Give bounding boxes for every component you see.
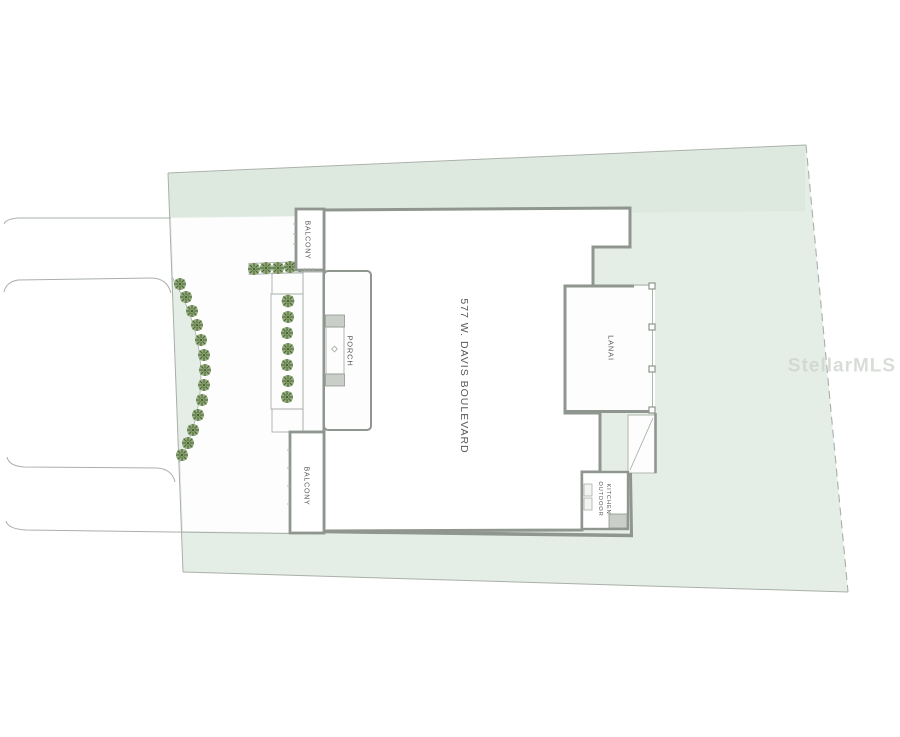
east-lower-wall — [631, 473, 632, 534]
curb-line-north — [4, 218, 171, 224]
label-lanai: LANAI — [607, 335, 616, 361]
site-plan-page: BALCONY BALCONY PORCH 577 W. DAVIS BOULE… — [0, 0, 900, 737]
label-porch: PORCH — [346, 335, 355, 366]
label-address: 577 W. DAVIS BOULEVARD — [458, 298, 470, 453]
kitchen-fixture-1 — [584, 484, 592, 496]
curb-line-lower-apron — [7, 457, 175, 482]
watermark-text: StellarMLS — [788, 356, 896, 377]
label-outdoor-kitchen-line2: KITCHEN — [605, 483, 611, 514]
label-outdoor-kitchen-line1: OUTDOOR — [597, 481, 603, 516]
site-plan-svg: BALCONY BALCONY PORCH 577 W. DAVIS BOULE… — [0, 0, 900, 737]
kitchen-island — [609, 514, 627, 528]
curb-line-upper-apron — [4, 278, 171, 293]
label-balcony-lower: BALCONY — [303, 466, 310, 505]
label-balcony-upper: BALCONY — [304, 220, 311, 259]
kitchen-fixture-2 — [584, 498, 592, 510]
rear-stairs — [628, 413, 656, 473]
outdoor-kitchen — [582, 472, 628, 529]
lot-top-band — [169, 146, 805, 217]
